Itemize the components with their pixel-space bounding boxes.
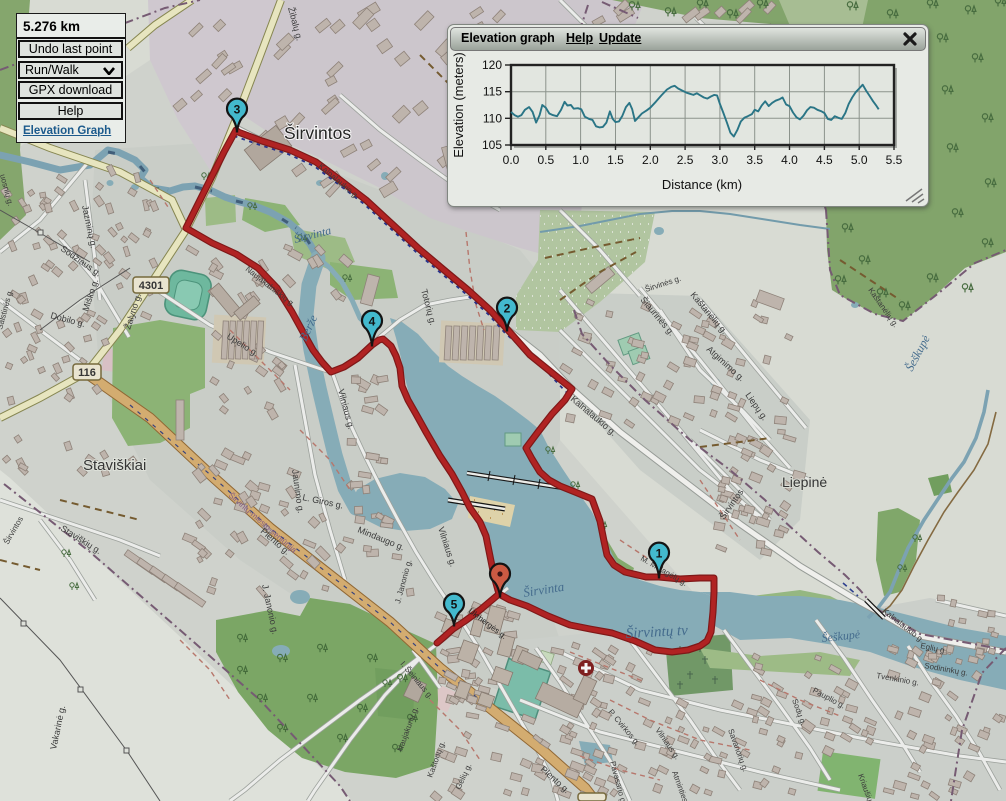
svg-text:110: 110 [483, 111, 502, 125]
svg-text:120: 120 [482, 58, 502, 72]
svg-text:4.0: 4.0 [781, 153, 798, 167]
svg-text:Liepinė: Liepinė [782, 474, 827, 490]
svg-text:0.5: 0.5 [537, 153, 554, 167]
svg-text:1.5: 1.5 [607, 153, 624, 167]
svg-text:Širvintos: Širvintos [284, 122, 351, 143]
svg-text:4: 4 [369, 315, 376, 329]
svg-text:115: 115 [483, 85, 502, 99]
svg-text:Širvintų tv: Širvintų tv [625, 622, 688, 642]
svg-text:Staviškiai: Staviškiai [83, 457, 146, 474]
svg-text:3.0: 3.0 [712, 153, 729, 167]
svg-text:5: 5 [451, 598, 458, 612]
svg-text:Elevation (meters): Elevation (meters) [451, 52, 466, 157]
svg-text:1: 1 [656, 547, 663, 561]
svg-text:2.0: 2.0 [642, 153, 659, 167]
svg-text:2: 2 [504, 302, 511, 316]
svg-text:1.0: 1.0 [572, 153, 589, 167]
svg-text:4.5: 4.5 [816, 153, 833, 167]
svg-text:2.5: 2.5 [677, 153, 694, 167]
svg-text:3.5: 3.5 [746, 153, 763, 167]
svg-text:105: 105 [482, 138, 502, 152]
svg-text:4301: 4301 [139, 280, 163, 292]
svg-text:5.0: 5.0 [851, 153, 868, 167]
svg-text:0.0: 0.0 [503, 153, 520, 167]
svg-text:Distance (km): Distance (km) [662, 177, 742, 192]
svg-text:3: 3 [234, 103, 241, 117]
svg-text:116: 116 [78, 367, 96, 379]
svg-text:5.5: 5.5 [886, 153, 903, 167]
